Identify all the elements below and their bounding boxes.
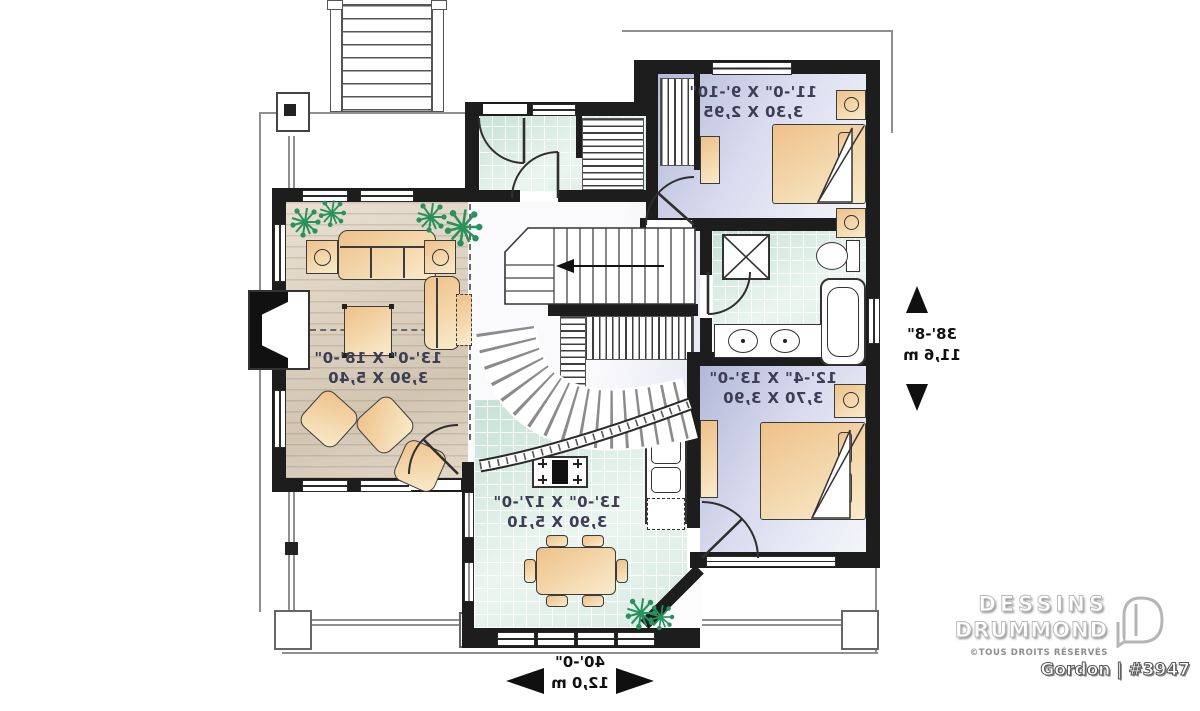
floor-plan-canvas: 13'-0" X 18'-0" 3,90 X 5,40 13'-0" X 17'…	[0, 0, 1200, 711]
bed-fold	[812, 126, 864, 518]
brand-line1: DESSINS	[930, 592, 1108, 616]
plant-icon	[291, 208, 319, 237]
width-dimension: 40'-0" 12,0 m	[538, 652, 622, 694]
basement-staircase	[480, 330, 690, 466]
depth-dimension: 38'-8" 11,6 m	[886, 324, 978, 366]
brand-line2: DRUMMOND	[930, 618, 1108, 642]
brand-wordmark: DESSINS DRUMMOND	[930, 592, 1108, 642]
depth-ft: 38'-8"	[886, 324, 978, 345]
living-door-leaf	[423, 439, 458, 474]
master-door-leaf	[702, 519, 742, 558]
front-door-arc	[479, 118, 524, 163]
staircase	[505, 228, 695, 304]
dimension-arrow-down-icon	[906, 384, 928, 411]
bedroom2-metric: 3,30 X 2,95	[674, 102, 832, 122]
master-imperial: 12'-4" X 13'-0"	[694, 368, 852, 388]
plant-icon	[320, 200, 345, 226]
master-metric: 3,70 X 3,90	[694, 388, 852, 408]
room-label-kitchen: 13'-0" X 17'-0" 3,90 X 5,10	[478, 492, 636, 533]
plant-icon	[417, 203, 445, 232]
room-label-living: 13'-0" X 18'-0" 3,90 X 5,40	[298, 348, 458, 389]
kitchen-imperial: 13'-0" X 17'-0"	[478, 492, 636, 512]
plant-icon	[649, 605, 673, 629]
width-m: 12,0 m	[538, 673, 622, 694]
shower-x-icon	[723, 235, 769, 279]
dimension-arrow-up-icon	[906, 286, 928, 313]
room-label-bedroom2: 11'-0" X 9'-10" 3,30 X 2,95	[674, 82, 832, 123]
bedroom2-imperial: 11'-0" X 9'-10"	[674, 82, 832, 102]
bedroom2-door-leaf	[658, 193, 694, 225]
bathroom-door-arc	[708, 272, 750, 314]
plant-icon	[446, 210, 481, 246]
living-metric: 3,90 X 5,40	[298, 368, 458, 388]
plan-name: Gordon | #3947	[1000, 660, 1190, 680]
depth-m: 11,6 m	[886, 345, 978, 366]
dimension-arrow-right-icon	[616, 668, 654, 694]
living-imperial: 13'-0" X 18'-0"	[298, 348, 458, 368]
copyright-text: ©TOUS DROITS RÉSERVÉS	[938, 648, 1108, 658]
vestibule-door-arc	[512, 152, 558, 198]
kitchen-metric: 3,90 X 5,10	[478, 512, 636, 532]
width-ft: 40'-0"	[538, 652, 622, 673]
room-label-master: 12'-4" X 13'-0" 3,70 X 3,90	[694, 368, 852, 409]
drummond-logo-icon	[1114, 592, 1166, 648]
